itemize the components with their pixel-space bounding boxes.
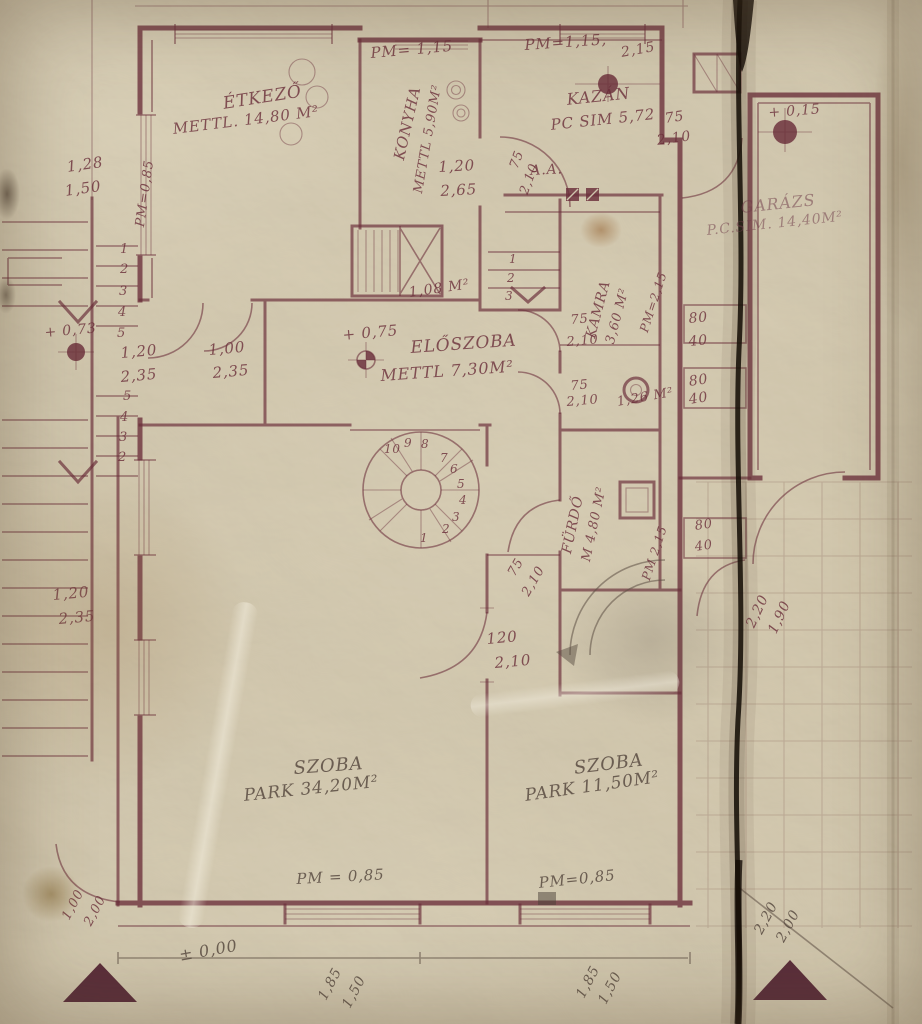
spiral-4: 4 xyxy=(459,494,467,506)
dim-shelf3-b: 40 xyxy=(694,538,714,553)
stair-f1-5: 5 xyxy=(117,327,126,340)
spiral-7: 7 xyxy=(440,452,448,464)
stair-f1-4: 4 xyxy=(118,306,127,319)
dim-door-etk1-w: 1,20 xyxy=(120,343,158,361)
stair-f1-3: 3 xyxy=(119,285,128,298)
dim-leftdoor-h: 2,35 xyxy=(58,609,96,627)
dim-konyha-b: 2,65 xyxy=(440,182,477,199)
dim-shelf3-a: 80 xyxy=(694,517,714,532)
dim-kamradoor1-h: 2,10 xyxy=(566,333,599,349)
spiral-5: 5 xyxy=(457,478,465,490)
dim-door-etk2-h: 2,35 xyxy=(212,363,250,381)
stair-f2-3: 3 xyxy=(119,431,128,444)
blueprint-floor-plan: PM= 1,15PM=1,15,2,15ÉTKEZŐMETTL. 14,80 M… xyxy=(0,0,922,1024)
dim-door-etk1-h: 2,35 xyxy=(120,367,158,385)
stair-kazan-2: 2 xyxy=(507,272,515,284)
dim-door-etk2-w: 1,00 xyxy=(208,340,246,358)
spiral-2: 2 xyxy=(442,523,450,535)
section-aa: A.A. xyxy=(530,162,563,178)
stair-kazan-1: 1 xyxy=(509,253,517,265)
stair-f1-2: 2 xyxy=(120,263,129,276)
dim-kamradoor2-w: 75 xyxy=(570,378,589,393)
dim-szobadoor-h: 2,10 xyxy=(494,653,532,671)
pm-szoba1: PM = 0,85 xyxy=(296,867,385,887)
dim-szobadoor-w: 120 xyxy=(486,629,518,647)
dim-shelf1-b: 40 xyxy=(688,333,709,349)
stair-f1-1: 1 xyxy=(120,243,129,256)
dim-garagedoor-n-w: 75 xyxy=(664,109,685,126)
dim-shelf2-a: 80 xyxy=(688,372,709,389)
dim-shelf1-a: 80 xyxy=(688,310,709,326)
stair-f2-4: 4 xyxy=(120,411,129,424)
spiral-1: 1 xyxy=(420,532,428,544)
stair-f2-2: 2 xyxy=(118,451,127,464)
spiral-8: 8 xyxy=(421,438,429,450)
dim-shelf2-b: 40 xyxy=(688,390,709,407)
floor-plan-drawing xyxy=(0,0,922,1024)
dim-konyha-a: 1,20 xyxy=(438,158,475,175)
spiral-3: 3 xyxy=(452,511,460,523)
spiral-10: 10 xyxy=(384,443,401,455)
dim-kamradoor1-w: 75 xyxy=(570,312,589,327)
spiral-6: 6 xyxy=(450,463,458,475)
stair-kazan-3: 3 xyxy=(505,290,513,302)
dim-kamradoor2-h: 2,10 xyxy=(566,393,599,409)
spiral-9: 9 xyxy=(404,437,412,449)
dim-leftdoor-w: 1,20 xyxy=(52,585,90,603)
level-garage: + 0,15 xyxy=(768,102,821,120)
stair-f2-5: 5 xyxy=(123,390,132,403)
